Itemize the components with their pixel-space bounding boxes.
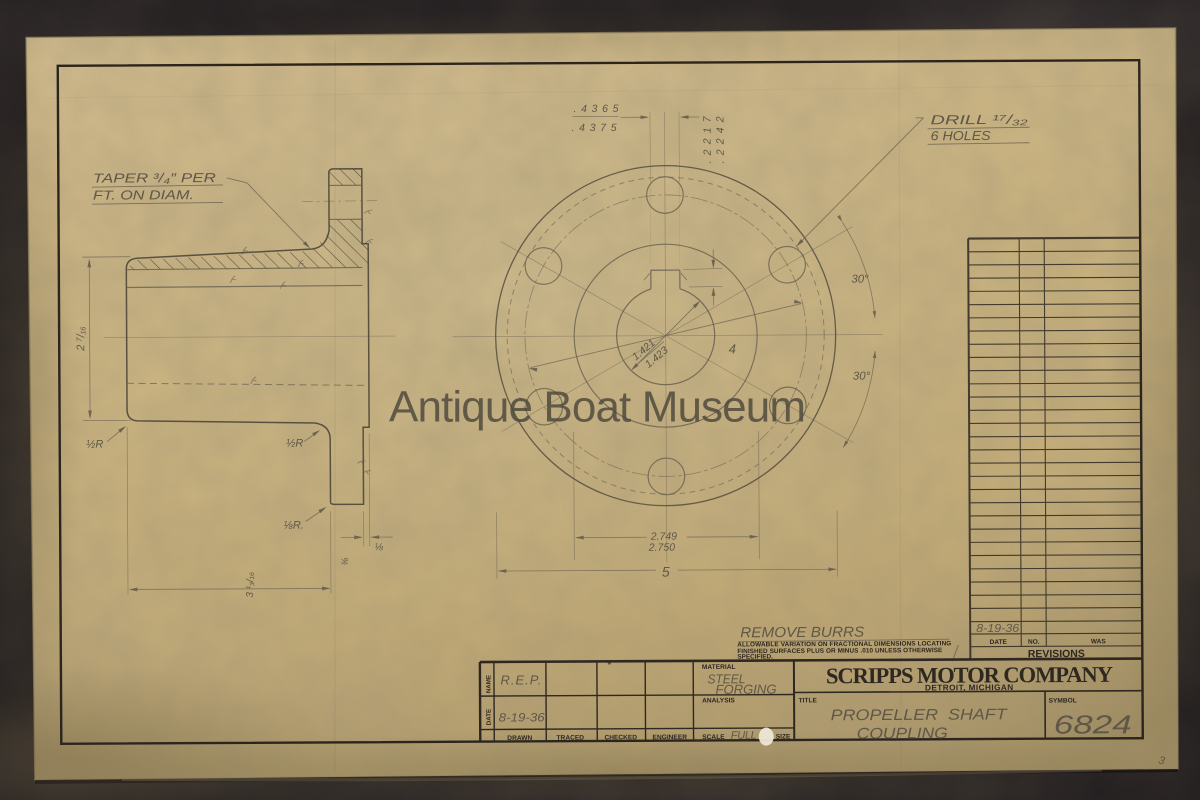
svg-text:2.750: 2.750 xyxy=(648,542,675,554)
svg-text:ENGINEER: ENGINEER xyxy=(653,734,688,741)
svg-text:2 ⁷/₁₆: 2 ⁷/₁₆ xyxy=(75,326,87,352)
svg-text:30°: 30° xyxy=(853,371,871,383)
svg-text:⅛: ⅛ xyxy=(375,542,384,553)
svg-text:DATE: DATE xyxy=(990,639,1008,646)
svg-text:SCALE: SCALE xyxy=(702,734,725,741)
svg-text:COUPLING: COUPLING xyxy=(857,725,948,742)
svg-text:R.E.P.: R.E.P. xyxy=(500,672,542,687)
svg-text:WAS: WAS xyxy=(1091,638,1107,645)
svg-text:8-19-36: 8-19-36 xyxy=(499,710,545,724)
svg-text:DATE: DATE xyxy=(486,709,493,725)
svg-text:6 HOLES: 6 HOLES xyxy=(931,128,991,143)
svg-text:6824: 6824 xyxy=(1054,709,1132,739)
svg-text:FORGING: FORGING xyxy=(715,682,776,697)
svg-text:.2217: .2217 xyxy=(702,115,714,163)
svg-text:TAPER ³/₄″ PER: TAPER ³/₄″ PER xyxy=(93,170,216,186)
svg-text:Antique Boat Museum: Antique Boat Museum xyxy=(389,383,806,432)
svg-text:.4365: .4365 xyxy=(573,103,618,115)
svg-text:8-19-36: 8-19-36 xyxy=(976,623,1020,635)
svg-text:SIZE: SIZE xyxy=(776,734,791,741)
svg-text:REMOVE BURRS: REMOVE BURRS xyxy=(740,625,864,642)
svg-text:⅛R.: ⅛R. xyxy=(284,520,304,532)
svg-text:4: 4 xyxy=(729,341,736,356)
svg-text:3 ¹₃/₁₆: 3 ¹₃/₁₆ xyxy=(245,572,256,598)
svg-text:FT. ON DIAM.: FT. ON DIAM. xyxy=(93,187,194,203)
svg-text:NO.: NO. xyxy=(1028,639,1040,646)
svg-text:MATERIAL: MATERIAL xyxy=(702,664,736,671)
svg-text:DRILL ¹⁷/₃₂: DRILL ¹⁷/₃₂ xyxy=(930,112,1027,128)
svg-text:FULL: FULL xyxy=(731,730,757,742)
svg-text:½R: ½R xyxy=(86,439,103,451)
svg-text:5: 5 xyxy=(662,564,670,580)
svg-text:TITLE: TITLE xyxy=(799,697,818,704)
svg-text:DETROIT, MICHIGAN: DETROIT, MICHIGAN xyxy=(925,683,1014,692)
svg-text:NAME: NAME xyxy=(485,675,492,693)
svg-text:PROPELLER SHAFT: PROPELLER SHAFT xyxy=(831,706,1009,724)
svg-text:⅜: ⅜ xyxy=(340,557,350,565)
svg-text:.4375: .4375 xyxy=(572,122,617,134)
svg-text:½R: ½R xyxy=(286,438,303,450)
svg-text:ANALYSIS: ANALYSIS xyxy=(702,697,735,704)
svg-text:CHECKED: CHECKED xyxy=(604,734,637,741)
svg-text:TRACED: TRACED xyxy=(557,735,585,742)
svg-text:30°: 30° xyxy=(851,274,869,286)
svg-text:SYMBOL: SYMBOL xyxy=(1049,698,1077,705)
svg-text:DRAWN: DRAWN xyxy=(507,735,532,742)
